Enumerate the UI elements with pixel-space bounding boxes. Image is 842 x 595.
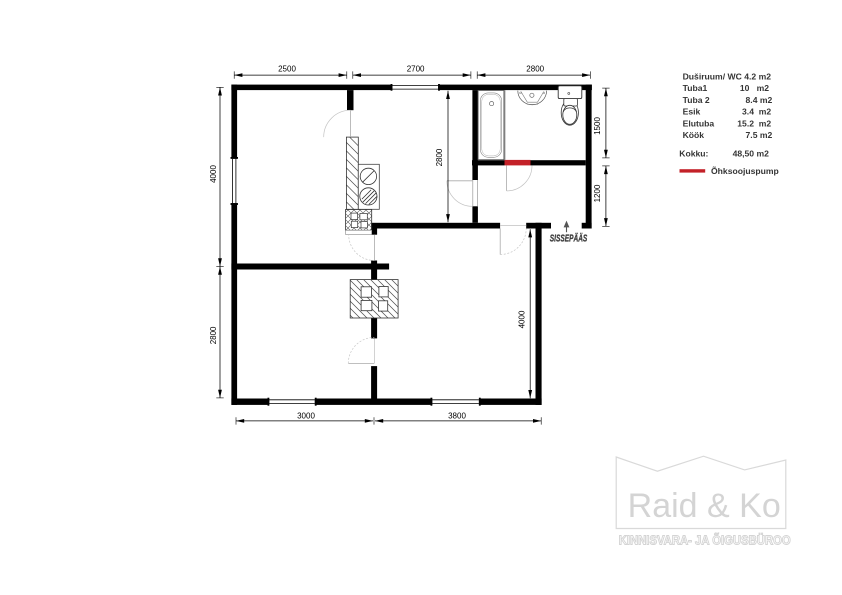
svg-text:Duširuum/ WC: Duširuum/ WC: [683, 72, 742, 82]
svg-text:2800: 2800: [526, 64, 544, 73]
svg-text:4000: 4000: [209, 165, 218, 183]
svg-text:3.4 m2: 3.4 m2: [742, 107, 771, 117]
svg-text:Elutuba: Elutuba: [683, 118, 715, 128]
svg-text:4000: 4000: [517, 310, 526, 328]
svg-text:Tuba1: Tuba1: [683, 83, 708, 93]
svg-text:7.5 m2: 7.5 m2: [746, 130, 773, 140]
svg-text:2500: 2500: [278, 64, 296, 73]
svg-text:10 m2: 10 m2: [740, 83, 769, 93]
svg-text:2800: 2800: [209, 326, 218, 344]
svg-text:2700: 2700: [407, 64, 425, 73]
svg-text:1200: 1200: [593, 184, 602, 202]
svg-text:1500: 1500: [593, 117, 602, 135]
svg-text:Köök: Köök: [683, 130, 705, 140]
svg-text:Tuba 2: Tuba 2: [683, 95, 710, 105]
svg-text:Õhksoojuspump: Õhksoojuspump: [711, 166, 779, 176]
svg-text:8.4 m2: 8.4 m2: [746, 95, 773, 105]
svg-text:3000: 3000: [297, 411, 315, 420]
svg-text:Kokku:: Kokku:: [679, 148, 708, 158]
svg-text:SISSEPÄÄS: SISSEPÄÄS: [550, 231, 588, 244]
svg-text:4.2 m2: 4.2 m2: [744, 72, 771, 82]
svg-text:Raid & Ko: Raid & Ko: [628, 487, 781, 525]
svg-text:Esik: Esik: [683, 107, 701, 117]
svg-text:48,50 m2: 48,50 m2: [733, 148, 770, 158]
svg-text:3800: 3800: [448, 411, 466, 420]
svg-text:KINNISVARA- JA ÕIGUSBÜROO: KINNISVARA- JA ÕIGUSBÜROO: [619, 532, 791, 547]
svg-text:2800: 2800: [435, 148, 444, 166]
svg-text:15.2 m2: 15.2 m2: [737, 118, 771, 128]
